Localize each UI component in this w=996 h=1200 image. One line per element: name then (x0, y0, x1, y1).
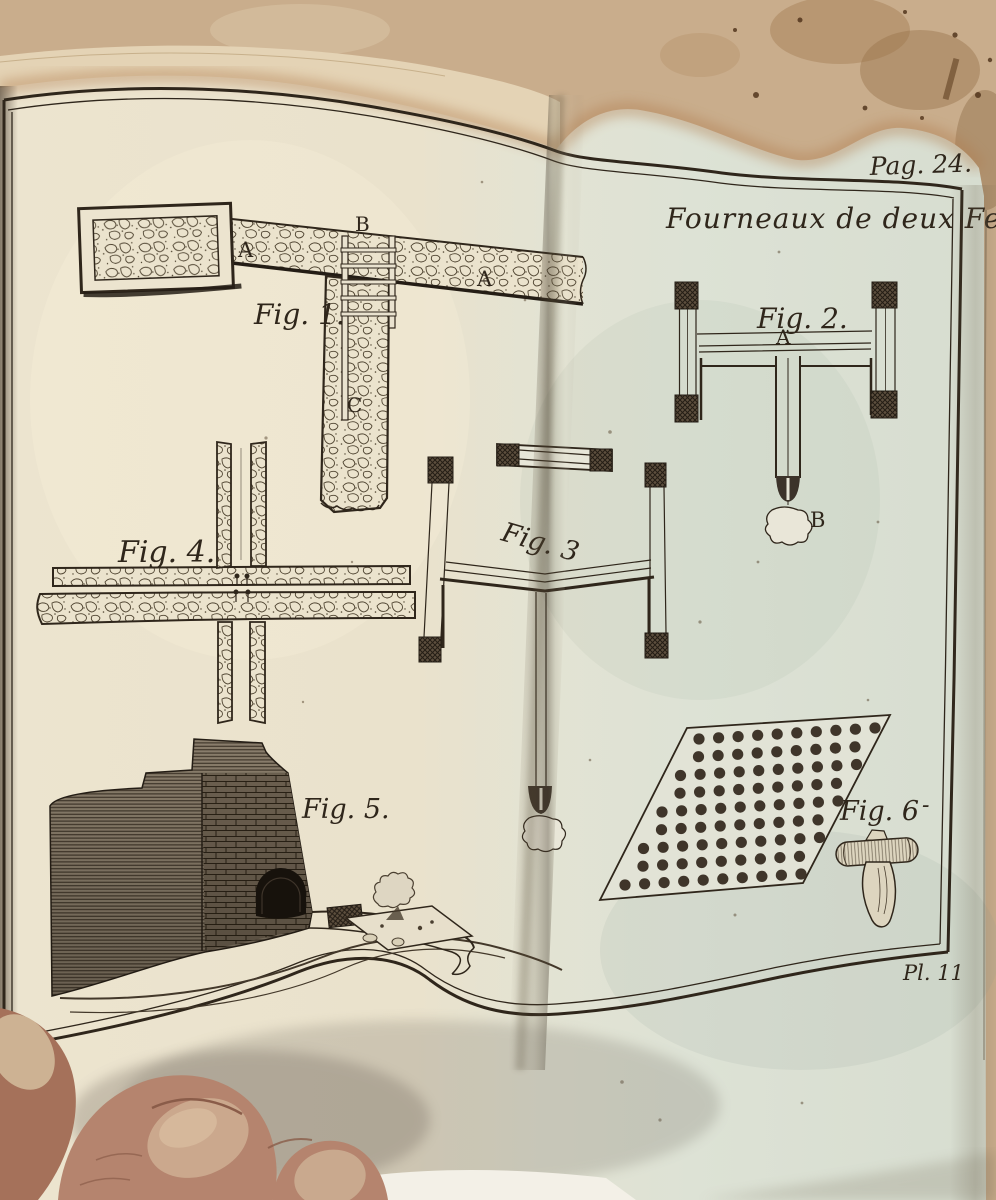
perforation-dot (696, 804, 707, 815)
fig3-corner-tl (428, 457, 453, 483)
fig1-label: Fig. 1. (253, 298, 345, 331)
fig5-arch-opening (256, 868, 306, 919)
perforation-dot (715, 820, 726, 831)
perforation-dot (776, 870, 787, 881)
perforation-dot (639, 878, 650, 889)
fig4-column-upper-right (251, 442, 266, 566)
perforation-dot (795, 868, 806, 879)
perforation-dot (696, 857, 707, 868)
fig4-column-upper-left (217, 442, 231, 568)
perforation-dot (656, 824, 667, 835)
fig1-letter-c: C (347, 393, 362, 417)
perforation-dot (676, 805, 687, 816)
fig3-corner-bl (419, 637, 441, 662)
perforation-dot (678, 876, 689, 887)
fig1-stone-box (79, 203, 242, 296)
perforation-dot (716, 856, 727, 867)
perforation-dot (735, 855, 746, 866)
perforation-dot (773, 764, 784, 775)
fig5-label: Fig. 5. (301, 794, 390, 825)
perforation-dot (693, 751, 704, 762)
perforation-dot (774, 799, 785, 810)
fig1-letter-a-left: A (237, 238, 254, 262)
perforation-dot (794, 851, 805, 862)
perforation-dot (714, 785, 725, 796)
fig4-band-upper (53, 566, 410, 586)
perforation-dot (695, 769, 706, 780)
perforation-dot (775, 834, 786, 845)
perforation-dot (694, 786, 705, 797)
perforation-dot (869, 722, 880, 733)
fig6-label-dash: - (922, 793, 929, 818)
perforation-dot (812, 814, 823, 825)
fig2-corner-bl (675, 395, 698, 422)
handwritten-page-ref: Pag. 24. (868, 148, 972, 181)
perforation-dot (753, 783, 764, 794)
perforation-dot (717, 873, 728, 884)
perforation-dot (810, 744, 821, 755)
perforation-dot (830, 743, 841, 754)
perforation-dot (812, 761, 823, 772)
perforation-dot (734, 766, 745, 777)
perforation-dot (659, 877, 670, 888)
perforation-dot (657, 859, 668, 870)
perforation-dot (619, 879, 630, 890)
perforation-dot (814, 832, 825, 843)
perforation-dot (674, 788, 685, 799)
fig6-label: Fig. 6 (839, 796, 919, 827)
fig2-corner-tr (872, 282, 897, 308)
perforation-dot (774, 852, 785, 863)
perforation-dot (733, 731, 744, 742)
perforation-dot (677, 858, 688, 869)
perforation-dot (756, 871, 767, 882)
perforation-dot (656, 806, 667, 817)
perforation-dot (772, 782, 783, 793)
fig3-corner-br (645, 633, 668, 658)
perforation-dot (772, 729, 783, 740)
perforation-dot (794, 833, 805, 844)
fig1-letter-b: B (355, 212, 370, 236)
perforation-dot (734, 819, 745, 830)
fig4-label: Fig. 4. (117, 535, 215, 570)
perforation-dot (638, 843, 649, 854)
perforation-dot (695, 822, 706, 833)
perforation-dot (715, 803, 726, 814)
perforation-dot (813, 797, 824, 808)
perforation-dot (771, 746, 782, 757)
fig2-letter-b: B (810, 508, 825, 532)
perforation-dot (713, 750, 724, 761)
fig4-column-lower-right (250, 622, 265, 723)
perforation-dot (713, 732, 724, 743)
perforation-dot (736, 837, 747, 848)
plate-title: Fourneaux de deux Feux (665, 202, 996, 235)
perforation-dot (755, 836, 766, 847)
perforation-dot (658, 842, 669, 853)
fig2-corner-br (871, 391, 897, 418)
perforation-dot (849, 741, 860, 752)
perforation-dot (714, 768, 725, 779)
perforation-dot (773, 817, 784, 828)
perforation-dot (831, 760, 842, 771)
perforation-dot (791, 745, 802, 756)
perforation-dot (830, 725, 841, 736)
perforation-dot (850, 724, 861, 735)
perforation-dot (755, 853, 766, 864)
perforation-dot (754, 818, 765, 829)
perforation-dot (754, 800, 765, 811)
perforation-dot (753, 765, 764, 776)
perforation-dot (697, 839, 708, 850)
perforation-dot (676, 823, 687, 834)
perforation-dot (732, 749, 743, 760)
perforation-dot (792, 763, 803, 774)
perforation-dot (637, 861, 648, 872)
fig1-letter-a-right: A (476, 267, 493, 291)
fig2-corner-tl (675, 282, 698, 309)
perforation-dot (752, 747, 763, 758)
perforation-dot (677, 841, 688, 852)
perforation-dot (831, 778, 842, 789)
perforation-dot (793, 798, 804, 809)
perforation-dot (811, 726, 822, 737)
plate-photo-scene: A B A C Fig. 1. A B Fig. 2. (0, 0, 996, 1200)
perforation-dot (716, 838, 727, 849)
perforation-dot (737, 872, 748, 883)
perforation-dot (793, 816, 804, 827)
fig2-mortar-blob (765, 507, 812, 545)
perforation-dot (675, 770, 686, 781)
perforation-dot (792, 780, 803, 791)
right-edge-curl (950, 185, 996, 1200)
perforation-dot (693, 733, 704, 744)
perforation-dot (698, 875, 709, 886)
perforation-dot (733, 784, 744, 795)
fig4-column-lower-left (218, 622, 232, 723)
book-photo: A B A C Fig. 1. A B Fig. 2. (0, 0, 996, 1200)
fig3-corner-tr (645, 463, 666, 487)
perforation-dot (735, 802, 746, 813)
perforation-dot (811, 779, 822, 790)
perforation-dot (851, 759, 862, 770)
perforation-dot (791, 727, 802, 738)
fig2-label: Fig. 2. (756, 302, 848, 335)
perforation-dot (752, 730, 763, 741)
